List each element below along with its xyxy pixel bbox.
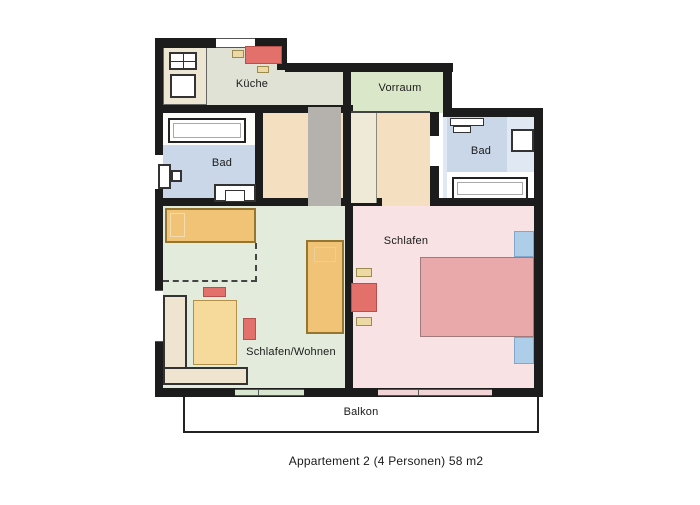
wardrobe-red: [351, 283, 377, 312]
red-accent-vertical: [243, 318, 256, 340]
balcony-door-pink-1: [378, 389, 418, 396]
label-bad-right: Bad: [471, 145, 491, 157]
burner: [184, 62, 196, 69]
nightstand-bottom: [356, 317, 372, 326]
bathtub-left: [168, 118, 246, 143]
washbasin-right-a: [450, 118, 484, 126]
toilet-left: [214, 184, 256, 202]
pillow-blue-bottom: [514, 337, 534, 364]
burner: [184, 54, 196, 61]
wardrobe-inner-detail: [314, 247, 336, 262]
plan-caption: Appartement 2 (4 Personen) 58 m2: [289, 454, 484, 468]
wall-bad-right-top: [443, 108, 543, 117]
burner: [171, 54, 183, 61]
wardrobe-orange: [306, 240, 344, 334]
balcony-door-green-1: [235, 389, 258, 396]
nightstand-top: [356, 268, 372, 277]
balcony-door-pink-2: [418, 389, 492, 396]
wall-corridor-right: [343, 63, 351, 206]
fridge-handle-b: [257, 66, 269, 73]
washbasin-left-b: [171, 170, 182, 182]
wall-left: [155, 38, 163, 397]
bed-orange-top: [165, 208, 256, 243]
wall-right: [534, 108, 543, 397]
stove-icon: [169, 52, 197, 70]
burner: [171, 62, 183, 69]
label-schlafen-wohnen: Schlafen/Wohnen: [246, 346, 336, 358]
washbasin-left-a: [158, 164, 171, 189]
washbasin-right-b: [453, 126, 471, 133]
label-kueche: Küche: [236, 78, 268, 90]
vestibule-door-passage: [382, 113, 430, 206]
wall-top-right: [285, 63, 453, 72]
closet-strip: [351, 113, 377, 203]
label-vorraum: Vorraum: [379, 82, 422, 94]
toilet-right: [511, 129, 534, 152]
bathtub-inner-line: [173, 123, 241, 138]
bathtub-inner-line: [457, 182, 523, 195]
fridge-red: [245, 46, 282, 64]
label-balkon: Balkon: [344, 406, 379, 418]
balcony-door-green-2: [258, 389, 304, 396]
sliding-door-shaft: [308, 107, 341, 206]
bed-pillow-outline: [170, 213, 185, 237]
wall-bad-left-right: [255, 105, 263, 206]
label-bad-left: Bad: [212, 157, 232, 169]
toilet-left-bowl: [225, 190, 245, 202]
foldout-bed-dashed-zone: [163, 243, 257, 282]
floorplan-canvas: Küche Vorraum Bad Bad Schlafen Schlafen/…: [0, 0, 700, 505]
sofa-l-horizontal: [163, 367, 248, 385]
label-schlafen: Schlafen: [384, 235, 428, 247]
double-bed: [420, 257, 534, 337]
window-left: [155, 290, 163, 342]
bathtub-right: [452, 177, 528, 200]
vorraum-threshold-line: [351, 111, 430, 113]
pillow-blue-top: [514, 231, 534, 257]
kitchen-sink-icon: [170, 74, 196, 98]
fridge-handle-a: [232, 50, 244, 58]
wall-vestibule-right-upper: [430, 112, 439, 136]
bed-yellow: [193, 300, 237, 365]
red-accent-horizontal: [203, 287, 226, 297]
